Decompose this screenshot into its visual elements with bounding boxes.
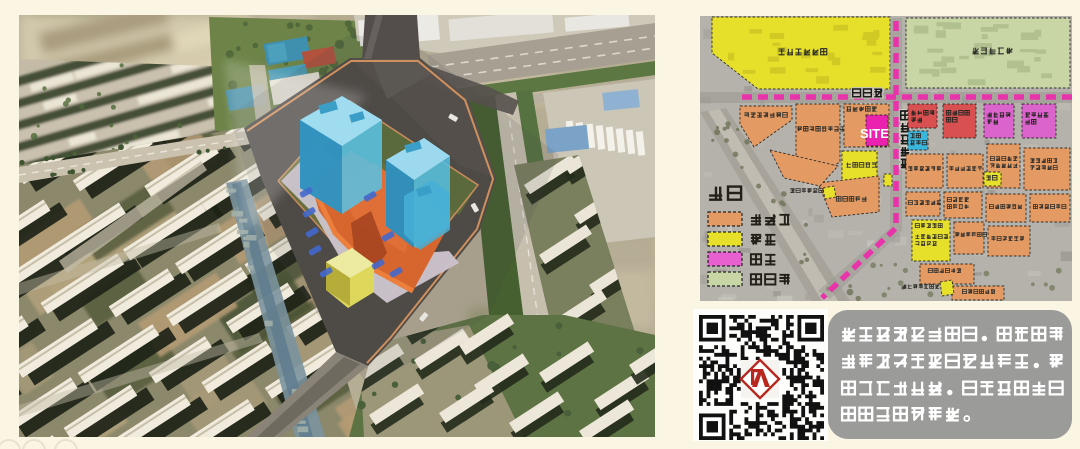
svg-text:SITE: SITE [860, 126, 889, 141]
